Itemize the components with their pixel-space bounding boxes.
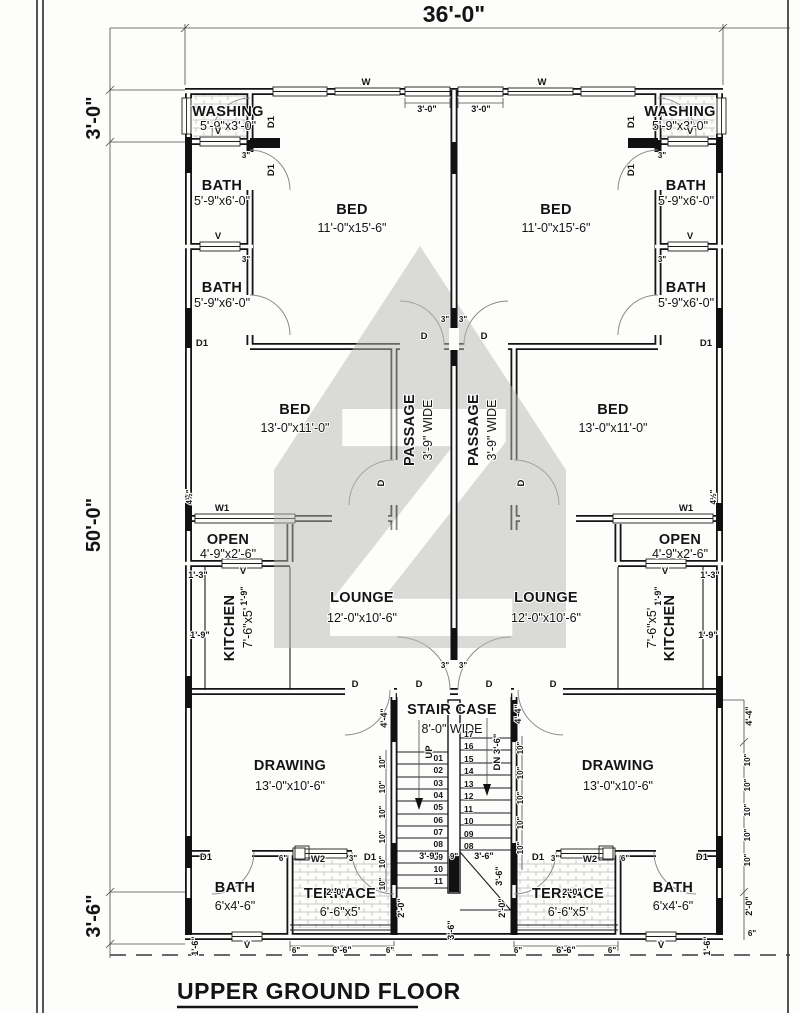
dim-landing: 2'-0" (396, 898, 406, 917)
dim-tread: 10" (378, 855, 387, 868)
dim-landing: 3'-6" (494, 866, 504, 885)
door1-mark: D1 (364, 852, 377, 863)
door-mark: D (376, 479, 387, 486)
dim-landing: 2'-0" (744, 896, 754, 915)
vent-mark: V (687, 231, 694, 242)
dim-bottom: 1'-6" (190, 936, 200, 955)
step-number: 16 (464, 741, 474, 751)
room-open-name: OPEN (207, 532, 249, 548)
dim-tread: 10" (743, 803, 752, 816)
step-number: 11 (464, 804, 473, 814)
room-kitchen-size: 7'-6"x5' (645, 608, 659, 648)
dim-kitchen: 1'-9" (698, 630, 717, 640)
vent-mark: V (240, 566, 247, 577)
dim-bottom: 6" (514, 946, 522, 955)
dim-jamb: 3" (459, 315, 467, 324)
door-mark: D (550, 679, 557, 690)
room-drawing-name: DRAWING (254, 758, 326, 774)
step-number: 17 (464, 729, 474, 739)
dim-tread: 10" (743, 828, 752, 841)
dim-wall: 3" (658, 151, 666, 160)
window-mark: W (362, 77, 371, 88)
room-washing-name: WASHING (644, 104, 715, 120)
door1-mark: D1 (532, 852, 545, 863)
step-number: 08 (434, 839, 444, 849)
door-mark: D (352, 679, 359, 690)
center-wall (449, 90, 459, 660)
dim-bath: 2'-0" (562, 887, 581, 897)
dim-bottom-strip: 3'-6" (83, 894, 105, 937)
drawing-sheet: Z 36'-0" 3'-0" 50'-0" 3'-6" (0, 0, 800, 1013)
dim-stair: 4'-4" (513, 704, 523, 723)
room-bath-size: 5'-9"x6'-0" (658, 194, 714, 208)
dim-jamb: 3" (459, 661, 467, 670)
room-passage-name: PASSAGE (466, 394, 482, 466)
door1-mark: D1 (266, 115, 277, 128)
dim-kitchen: 1'-3" (700, 570, 719, 580)
dim-tread: 10" (516, 766, 525, 779)
dim-landing: 3'-6" (474, 851, 493, 861)
room-bath-size: 5'-9"x6'-0" (194, 194, 250, 208)
window2-mark: W2 (311, 854, 325, 865)
dim-kitchen: 1'-9" (190, 630, 209, 640)
dim-bottom: 6'-6" (556, 945, 575, 955)
dim-wall: 3" (242, 151, 250, 160)
vent-mark: V (215, 126, 222, 137)
dim-kitchen: 1'-9" (653, 586, 663, 605)
window1-mark: W1 (215, 503, 230, 514)
stair-down-label: DN 3'-6" (492, 734, 503, 771)
vent-mark: V (658, 940, 665, 951)
step-number: 08 (464, 841, 474, 851)
door-mark: D (421, 331, 428, 342)
step-number: 05 (434, 802, 444, 812)
dim-tread: 10" (378, 805, 387, 818)
room-lounge-size: 12'-0"x10'-6" (327, 611, 397, 625)
floor-plan: Z 36'-0" 3'-0" 50'-0" 3'-6" (0, 0, 800, 1013)
vent-mark: V (662, 566, 669, 577)
room-kitchen-name: KITCHEN (222, 595, 238, 662)
dim-window: 3'-0" (417, 104, 436, 114)
step-number: 02 (434, 765, 444, 775)
dim-jamb: 3" (441, 661, 449, 670)
room-bath-size: 5'-9"x6'-0" (658, 296, 714, 310)
step-number: 03 (434, 778, 444, 788)
door1-mark: D1 (200, 852, 213, 863)
room-bath-name: BATH (202, 178, 242, 194)
dim-tread: 10" (378, 780, 387, 793)
dim-bottom: 6" (292, 946, 300, 955)
step-number: 10 (464, 816, 474, 826)
door-mark: D (416, 679, 423, 690)
room-bed-size: 11'-0"x15'-6" (317, 221, 386, 235)
vent-mark: V (215, 231, 222, 242)
room-lounge-size: 12'-0"x10'-6" (511, 611, 581, 625)
dim-tread: 10" (516, 841, 525, 854)
room-bath3-size: 6'x4'-6" (215, 899, 255, 913)
dim-bottom: 1'-6" (702, 936, 712, 955)
dim-bottom: 6" (748, 929, 756, 938)
dim-stair: 4'-4" (379, 708, 389, 727)
step-number: 12 (464, 791, 474, 801)
room-bed-size: 11'-0"x15'-6" (521, 221, 590, 235)
room-bath-name: BATH (666, 178, 706, 194)
door1-mark: D1 (196, 338, 209, 349)
dim-jamb: 3" (441, 315, 449, 324)
room-bed2-size: 13'-0"x11'-0" (260, 421, 329, 435)
room-drawing-size: 13'-0"x10'-6" (255, 779, 325, 793)
door-mark: D (481, 331, 488, 342)
dim-landing: 9" (450, 852, 458, 861)
dim-wall: 3" (349, 854, 357, 863)
room-passage-size: 3'-9" WIDE (485, 400, 499, 461)
dim-tread: 10" (378, 830, 387, 843)
room-bed2-name: BED (279, 402, 311, 418)
dim-tread: 10" (516, 816, 525, 829)
step-number: 11 (434, 876, 443, 886)
dim-kitchen: 1'-3" (188, 570, 207, 580)
vent-mark: V (244, 940, 251, 951)
room-kitchen-size: 7'-6"x5' (241, 608, 255, 648)
dim-bath: 2'-0" (326, 887, 345, 897)
dim-landing: 3'-6" (446, 920, 456, 939)
room-lounge-name: LOUNGE (330, 590, 394, 606)
room-drawing-name: DRAWING (582, 758, 654, 774)
room-bed2-name: BED (597, 402, 629, 418)
window2-mark: W2 (583, 854, 597, 865)
dim-top-strip: 3'-0" (83, 96, 105, 139)
room-bath3-name: BATH (215, 880, 255, 896)
door1-mark: D1 (626, 163, 637, 176)
room-stair-name: STAIR CASE (407, 702, 497, 718)
dim-bottom: 6'-6" (332, 945, 351, 955)
dim-window: 3'-0" (471, 104, 490, 114)
window-mark: W (538, 77, 547, 88)
dim-tread: 10" (516, 791, 525, 804)
room-bed-name: BED (540, 202, 572, 218)
step-number: 04 (434, 790, 444, 800)
room-passage-size: 3'-9" WIDE (421, 400, 435, 461)
dim-bottom: 6" (386, 946, 394, 955)
dim-wall: 4½" (185, 489, 194, 504)
dim-tread: 10" (743, 853, 752, 866)
dim-wall: 6" (279, 854, 287, 863)
window1-mark: W1 (679, 503, 694, 514)
room-passage-name: PASSAGE (402, 394, 418, 466)
room-terrace-size: 6'-6"x5' (548, 905, 588, 919)
vent-mark: V (687, 126, 694, 137)
room-terrace-size: 6'-6"x5' (320, 905, 360, 919)
watermark-logo: Z (274, 246, 566, 706)
room-open-size: 4'-9"x2'-6" (652, 547, 708, 561)
door-mark: D (486, 679, 493, 690)
room-bath3-size: 6'x4'-6" (653, 899, 693, 913)
room-open-name: OPEN (659, 532, 701, 548)
dim-overall-height: 50'-0" (83, 498, 105, 552)
dim-tread: 10" (378, 755, 387, 768)
room-bed2-size: 13'-0"x11'-0" (578, 421, 647, 435)
dim-kitchen: 1'-9" (239, 586, 249, 605)
step-number: 15 (464, 754, 474, 764)
dim-bottom: 6" (608, 946, 616, 955)
room-washing-size: 5'-9"x3'-0" (200, 119, 256, 133)
dim-tread: 10" (743, 753, 752, 766)
door1-mark: D1 (266, 163, 277, 176)
dim-wall: 6" (621, 854, 629, 863)
step-number: 07 (434, 827, 444, 837)
room-lounge-name: LOUNGE (514, 590, 578, 606)
dim-landing: 3'-9" (419, 851, 438, 861)
dim-wall: 4½" (709, 489, 718, 504)
dim-wall: 3" (658, 255, 666, 264)
page-title: UPPER GROUND FLOOR (177, 978, 461, 1004)
room-open-size: 4'-9"x2'-6" (200, 547, 256, 561)
step-number: 06 (434, 815, 444, 825)
step-number: 10 (434, 864, 444, 874)
dim-tread: 10" (743, 778, 752, 791)
door1-mark: D1 (626, 115, 637, 128)
room-bed-name: BED (336, 202, 368, 218)
room-bath3-name: BATH (653, 880, 693, 896)
dim-tread: 10" (378, 877, 387, 890)
dim-wall: 3" (551, 854, 559, 863)
room-bath-name: BATH (202, 280, 242, 296)
door1-mark: D1 (696, 852, 709, 863)
dim-stair: 4'-4" (744, 706, 754, 725)
dim-landing: 2'-0" (497, 898, 507, 917)
svg-text:Z: Z (320, 337, 522, 706)
door1-mark: D1 (700, 338, 713, 349)
room-bath-name: BATH (666, 280, 706, 296)
dim-tread: 10" (516, 741, 525, 754)
room-drawing-size: 13'-0"x10'-6" (583, 779, 653, 793)
door-mark: D (516, 479, 527, 486)
dim-overall-width: 36'-0" (423, 1, 485, 27)
step-number: 13 (464, 779, 474, 789)
room-washing-name: WASHING (192, 104, 263, 120)
step-number: 14 (464, 766, 474, 776)
step-number: 01 (434, 753, 444, 763)
step-number: 09 (464, 829, 474, 839)
dim-wall: 3" (242, 255, 250, 264)
room-washing-size: 5'-9"x3'-0" (652, 119, 708, 133)
room-kitchen-name: KITCHEN (662, 595, 678, 662)
room-bath-size: 5'-9"x6'-0" (194, 296, 250, 310)
